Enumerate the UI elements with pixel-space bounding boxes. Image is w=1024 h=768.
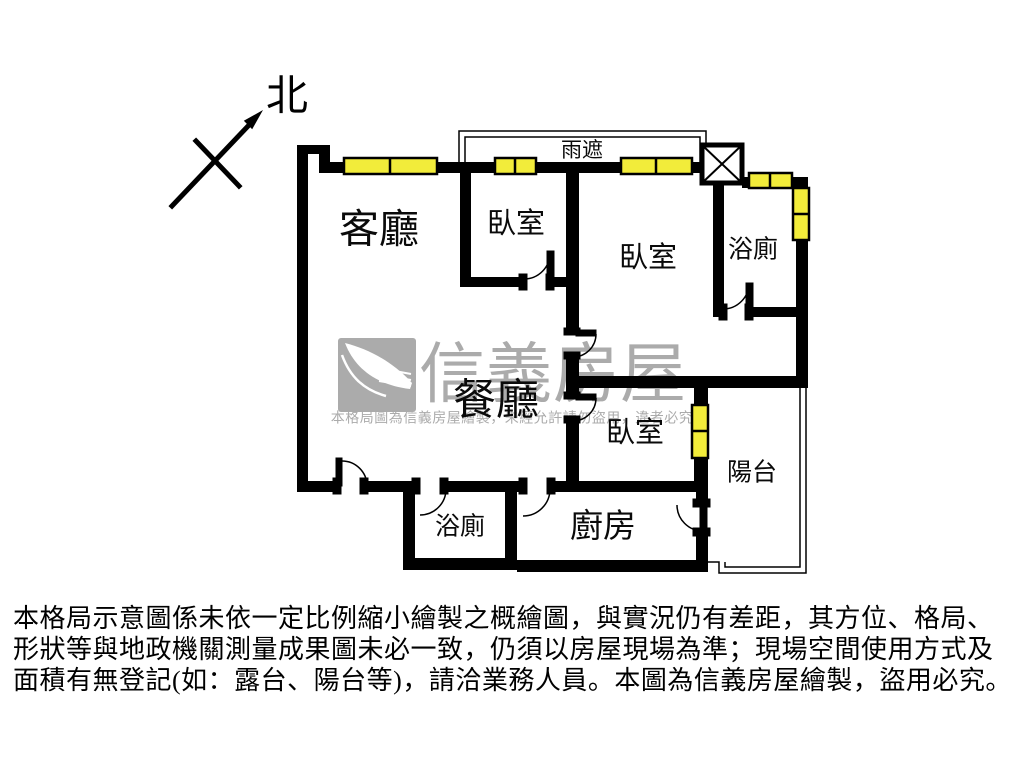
window bbox=[749, 173, 792, 188]
duct-box bbox=[702, 145, 742, 183]
door-kitchen bbox=[519, 478, 555, 516]
room-label-dining: 餐廳 bbox=[453, 377, 539, 425]
disclaimer-line: 本格局示意圖係未依一定比例縮小繪製之概繪圖，與實況仍有差距，其方位、格局、 bbox=[13, 603, 1017, 634]
door-bedroom-top bbox=[519, 251, 554, 290]
room-label-canopy: 雨遮 bbox=[561, 138, 603, 162]
window bbox=[344, 158, 437, 174]
north-compass: 北 bbox=[172, 74, 308, 206]
brand-logo-icon bbox=[338, 338, 416, 412]
room-label-bath-lower: 浴廁 bbox=[435, 513, 485, 541]
room-label-bedroom-right: 臥室 bbox=[619, 241, 677, 274]
window bbox=[621, 158, 692, 174]
door-balcony bbox=[677, 499, 710, 536]
floor-plan-page: 信義房屋 本格局圖為信義房屋繪製，未經允許請勿盜用，違者必究 bbox=[0, 0, 1024, 768]
room-label-bath-upper: 浴廁 bbox=[728, 236, 778, 264]
door-entry bbox=[333, 458, 368, 494]
north-arrow-icon bbox=[172, 110, 263, 206]
north-label: 北 bbox=[266, 74, 308, 120]
window bbox=[495, 158, 536, 174]
disclaimer-line: 形狀等與地政機關測量成果圖未必一致，仍須以房屋現場為準；現場空間使用方式及 bbox=[13, 634, 1017, 665]
room-label-kitchen: 廚房 bbox=[570, 508, 636, 545]
room-label-bedroom-top: 臥室 bbox=[487, 207, 545, 240]
disclaimer-text: 本格局示意圖係未依一定比例縮小繪製之概繪圖，與實況仍有差距，其方位、格局、 形狀… bbox=[13, 603, 1017, 696]
room-label-living: 客廳 bbox=[339, 207, 419, 252]
door-bath-lower bbox=[412, 478, 448, 515]
window bbox=[793, 188, 809, 240]
room-label-bedroom-lower: 臥室 bbox=[606, 416, 664, 449]
door-bath-upper bbox=[719, 283, 753, 320]
room-label-balcony: 陽台 bbox=[727, 459, 777, 487]
disclaimer-line: 面積有無登記(如：露台、陽台等)，請洽業務人員。本圖為信義房屋繪製，盜用必究。 bbox=[13, 665, 1017, 696]
window bbox=[692, 405, 708, 458]
